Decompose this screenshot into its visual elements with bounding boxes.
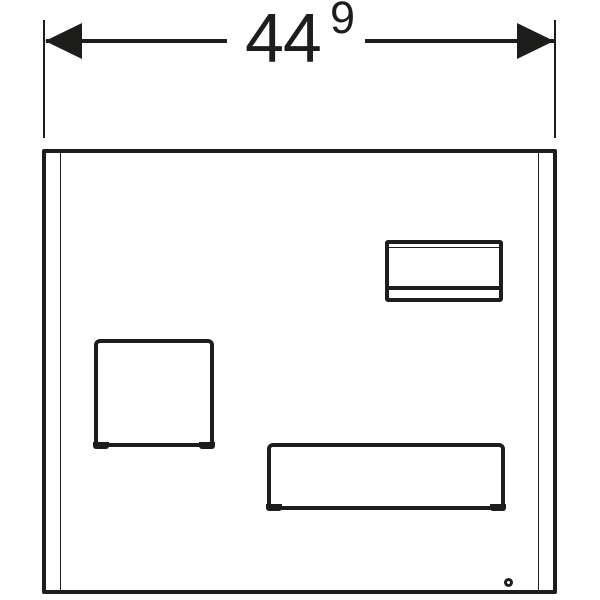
cutout-top-right-inner-line xyxy=(389,247,499,249)
cutout-left-square xyxy=(94,339,214,447)
cutout-left-foot-left xyxy=(93,442,109,449)
extension-line-right xyxy=(554,20,556,138)
dimension-value: 44 xyxy=(245,3,321,73)
cabinet-outline xyxy=(42,149,557,594)
left-side-panel-line xyxy=(60,153,62,590)
cutout-bottom-foot-right xyxy=(490,504,506,511)
drain-hole-dot xyxy=(504,578,513,587)
dimension-superscript: 9 xyxy=(330,0,355,40)
cutout-left-foot-right xyxy=(199,442,215,449)
arrowhead-left-icon xyxy=(45,23,82,59)
dimension-label: 44 9 xyxy=(245,3,365,73)
arrowhead-right-icon xyxy=(517,23,554,59)
cutout-top-right xyxy=(385,240,503,302)
right-side-panel-line xyxy=(538,153,540,590)
cutout-bottom-foot-left xyxy=(266,504,282,511)
cutout-top-right-divider-line xyxy=(389,286,499,290)
technical-drawing-canvas: 44 9 xyxy=(0,0,600,600)
drain-hole-dot-center xyxy=(507,581,510,584)
cutout-bottom-wide xyxy=(267,443,505,510)
